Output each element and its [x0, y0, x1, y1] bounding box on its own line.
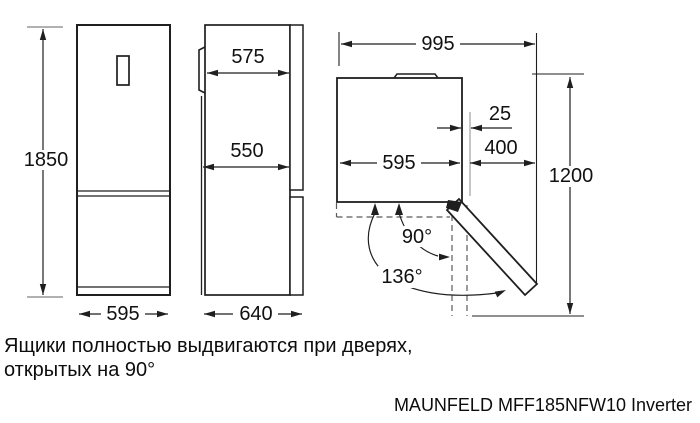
- angle-90-label: 90°: [402, 226, 432, 248]
- door-side-lower: [290, 197, 303, 295]
- drawers-note-line1: Ящики полностью выдвигаются при дверях,: [4, 334, 644, 358]
- angle-136-label: 136°: [381, 266, 422, 288]
- side-view: 575 550 640: [199, 25, 303, 325]
- drawers-note: Ящики полностью выдвигаются при дверях, …: [4, 334, 644, 382]
- front-view: 1850 595: [23, 25, 170, 325]
- dim-595-label: 595: [382, 152, 415, 174]
- dim-lower-depth-label: 550: [230, 140, 263, 162]
- dim-995-label: 995: [421, 33, 454, 55]
- door-side-upper: [290, 25, 303, 190]
- model-name: MAUNFELD MFF185NFW10 Inverter: [394, 395, 692, 416]
- fridge-top-outline: [337, 78, 462, 202]
- screenshot-root: 1850 595 575 550 640: [0, 0, 700, 423]
- display-panel: [117, 56, 129, 85]
- top-view: 995 25 595 400 1200 90° 136°: [337, 32, 597, 316]
- drawers-note-line2: открытых на 90°: [4, 358, 644, 382]
- arc-90-arrow-end: [439, 254, 450, 261]
- dimension-diagram: 1850 595 575 550 640: [0, 0, 700, 345]
- door-handle: [199, 47, 205, 93]
- dim-1200-label: 1200: [549, 165, 594, 187]
- open-door: [447, 199, 537, 295]
- dim-width-label: 595: [106, 303, 139, 325]
- dim-400-label: 400: [484, 137, 517, 159]
- dim-height-label: 1850: [24, 149, 69, 171]
- dim-25-label: 25: [489, 103, 511, 125]
- dim-total-depth-label: 640: [239, 303, 272, 325]
- arc-136-arrow-up: [371, 203, 379, 215]
- arc-136-arrow-end: [495, 290, 506, 297]
- arc-90-arrow-up: [395, 203, 403, 215]
- dim-upper-depth-label: 575: [231, 46, 264, 68]
